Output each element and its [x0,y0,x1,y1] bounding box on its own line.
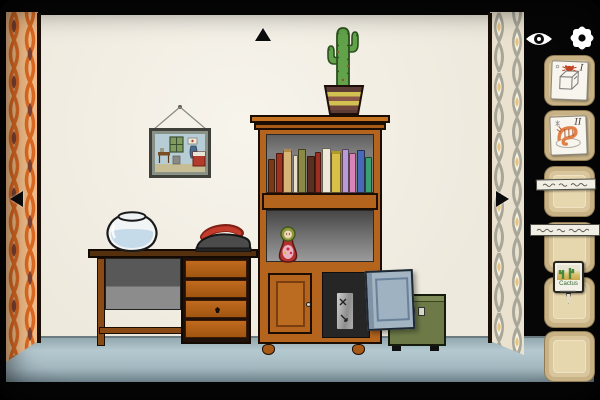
potted-cactus[interactable] [322,24,366,118]
eye-icon[interactable] [524,29,554,53]
left-arrow[interactable] [10,191,23,207]
safe-keypad[interactable] [418,307,425,316]
book-spine[interactable] [331,151,341,193]
bookcase-foot-left [262,344,275,355]
safe-foot-right [430,346,439,351]
book-spine[interactable] [342,149,350,193]
item-numeral: II [574,118,581,128]
book-spine[interactable] [276,153,283,193]
desk-drawers[interactable] [181,256,251,344]
scribble-text-icon [539,180,593,190]
drawer-4[interactable] [185,320,247,338]
right-wall-edge [488,13,492,343]
drawer-3[interactable] [185,300,247,318]
book-spine[interactable] [315,152,321,193]
desk-back-panel [105,258,181,310]
cabinet-door-closed[interactable] [268,273,312,334]
tag-label: Cactus [555,281,582,287]
cactus-art-icon [557,265,580,280]
up-arrow[interactable] [255,28,271,41]
door-knob-icon [306,302,311,307]
tag-stake [566,293,571,304]
bookcase-shelf-board [262,193,378,210]
metal-plate[interactable] [336,292,354,330]
iron[interactable] [194,224,252,252]
book-spine[interactable] [349,153,356,193]
fishbowl[interactable] [105,210,159,252]
keyhole-icon [215,307,220,313]
book-spine[interactable] [307,156,315,193]
book-spine[interactable] [283,149,292,193]
tag-card: Cactus [553,261,584,293]
right-wallpaper-wall [490,12,524,362]
book-spine[interactable] [357,150,365,193]
cactus-plant-tag[interactable]: Cactus [553,261,585,305]
inventory-slot-1[interactable]: I [545,56,594,105]
inventory-slot-2[interactable]: II [545,111,594,160]
gear-icon[interactable] [568,24,596,56]
book-spine[interactable] [268,159,275,193]
game-scene: I II [0,0,600,400]
door-panel [276,281,305,327]
open-door-hinge-edge [367,273,374,329]
left-wallpaper-wall [6,12,38,362]
right-arrow[interactable] [496,191,509,207]
book-spine[interactable] [298,149,306,193]
bookcase-crown [250,115,390,123]
book-spine[interactable] [322,148,331,193]
drawer-2[interactable] [185,280,247,298]
book-spine[interactable] [365,157,372,193]
matryoshka-doll[interactable] [278,226,298,263]
left-wall-edge [37,13,41,343]
item-cube-with-crab-card[interactable]: I [550,60,588,100]
handwritten-note-strip-wide[interactable] [530,224,600,236]
bookcase-foot-right [352,344,365,355]
tag-fineprint-icon [557,289,580,293]
inventory-slot-6[interactable] [545,332,594,381]
inventory-slot-3[interactable] [545,167,594,216]
cabinet-door-open[interactable] [365,269,416,331]
open-door-panel [375,277,410,321]
safe-foot-left [392,346,401,351]
books-row[interactable] [268,147,372,193]
scribble-text-icon [533,225,597,235]
drawer-1[interactable] [185,260,247,278]
desk-stretcher [99,327,186,334]
item-shrimp-card[interactable]: II [549,115,587,155]
item-numeral: I [580,63,584,73]
framed-picture[interactable] [147,102,213,182]
tag-picture [557,265,580,280]
handwritten-note-strip[interactable] [536,178,596,190]
